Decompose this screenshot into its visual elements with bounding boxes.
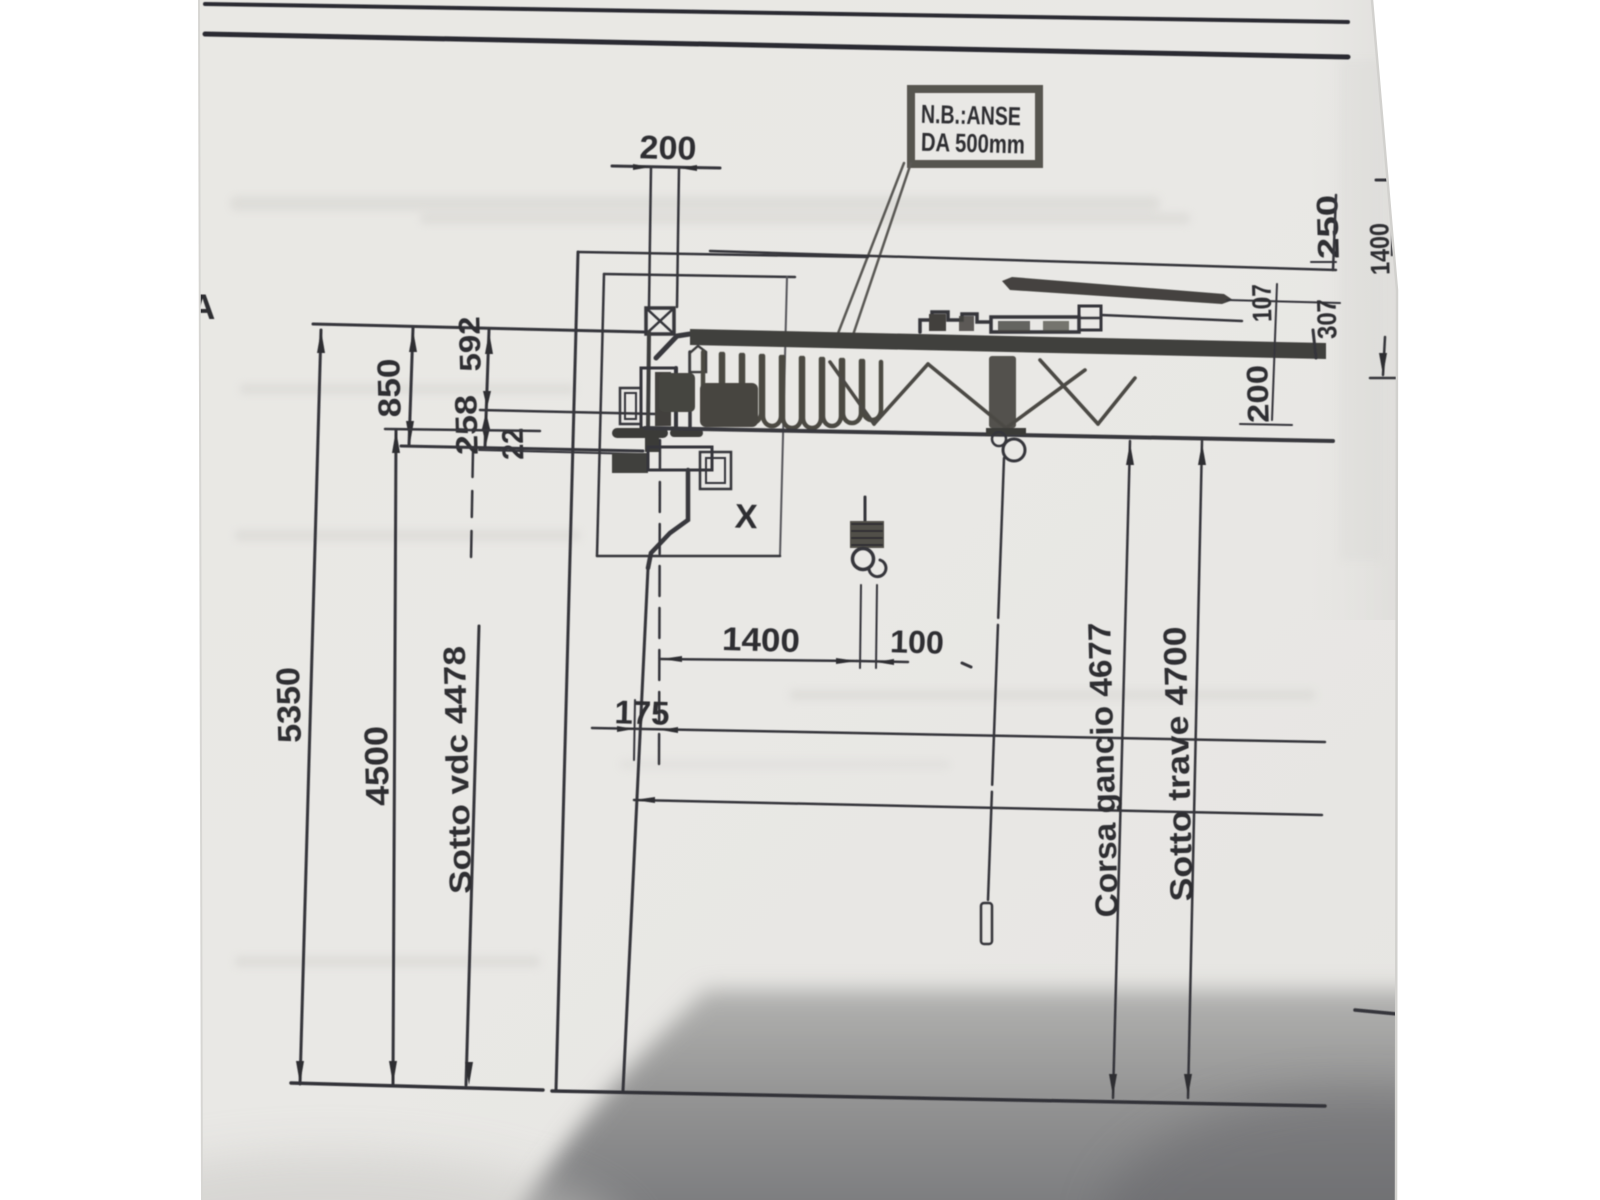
svg-text:22: 22	[497, 427, 531, 460]
svg-text:A: A	[190, 288, 215, 327]
svg-text:307: 307	[1311, 299, 1342, 340]
svg-text:107: 107	[1247, 284, 1278, 323]
svg-text:Sotto trave 4700: Sotto trave 4700	[1156, 626, 1199, 902]
svg-text:200: 200	[639, 128, 697, 166]
svg-text:DA 500mm: DA 500mm	[921, 127, 1026, 160]
svg-text:Sotto vdc 4478: Sotto vdc 4478	[437, 646, 478, 895]
svg-text:X: X	[734, 498, 758, 537]
svg-text:200: 200	[1241, 365, 1276, 424]
svg-text:5350: 5350	[269, 667, 308, 744]
svg-text:850: 850	[370, 358, 408, 418]
svg-text:100: 100	[890, 623, 945, 660]
svg-text:1400: 1400	[722, 620, 801, 659]
svg-text:4500: 4500	[357, 726, 396, 807]
svg-text:592: 592	[453, 316, 487, 372]
svg-text:250: 250	[1311, 195, 1346, 260]
svg-text:175: 175	[614, 693, 670, 731]
